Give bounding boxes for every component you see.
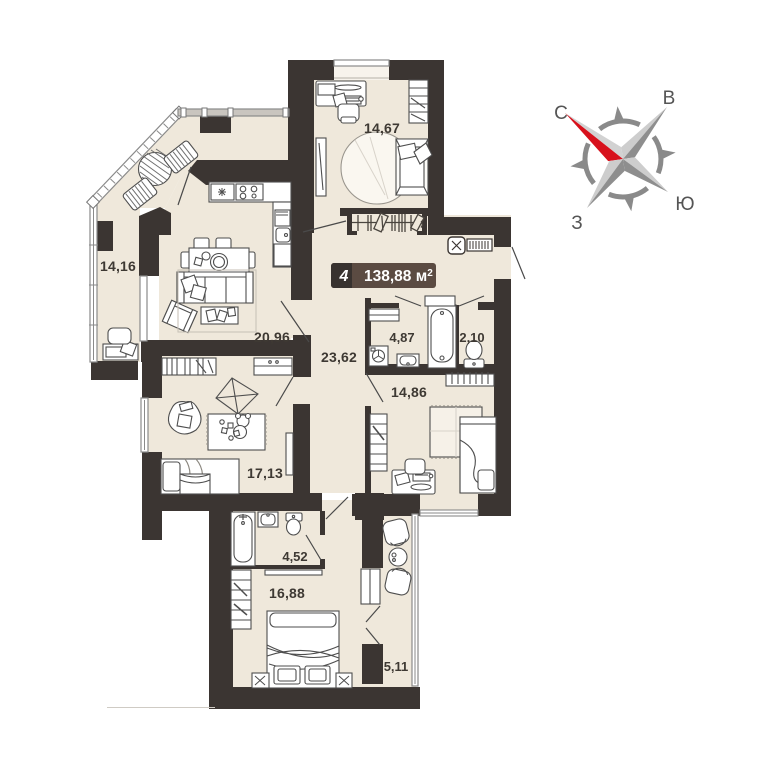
svg-text:4: 4 <box>339 268 349 285</box>
svg-text:20,96: 20,96 <box>254 329 290 345</box>
svg-text:Ю: Ю <box>675 194 694 215</box>
svg-text:14,86: 14,86 <box>391 384 427 400</box>
svg-text:16,88: 16,88 <box>269 585 305 601</box>
svg-text:14,67: 14,67 <box>364 120 400 136</box>
svg-text:З: З <box>571 213 582 234</box>
svg-text:23,62: 23,62 <box>321 349 357 365</box>
svg-text:4,87: 4,87 <box>389 330 414 345</box>
svg-text:138,88 м2: 138,88 м2 <box>364 268 433 285</box>
svg-text:В: В <box>663 88 676 109</box>
svg-text:4,52: 4,52 <box>282 549 307 564</box>
svg-text:С: С <box>554 103 568 124</box>
svg-text:5,11: 5,11 <box>384 659 409 674</box>
svg-text:2,10: 2,10 <box>459 330 484 345</box>
svg-text:14,16: 14,16 <box>100 258 136 274</box>
svg-text:17,13: 17,13 <box>247 465 283 481</box>
